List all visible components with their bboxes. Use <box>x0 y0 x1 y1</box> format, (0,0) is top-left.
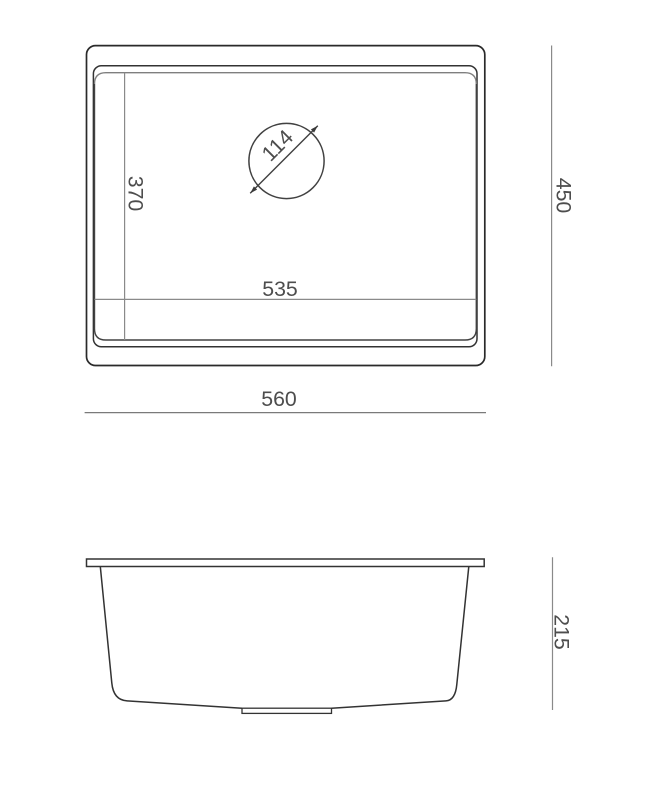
svg-text:215: 215 <box>550 614 574 650</box>
svg-text:370: 370 <box>124 176 148 212</box>
svg-text:560: 560 <box>261 387 297 411</box>
svg-text:535: 535 <box>262 277 298 301</box>
svg-text:450: 450 <box>552 178 576 214</box>
